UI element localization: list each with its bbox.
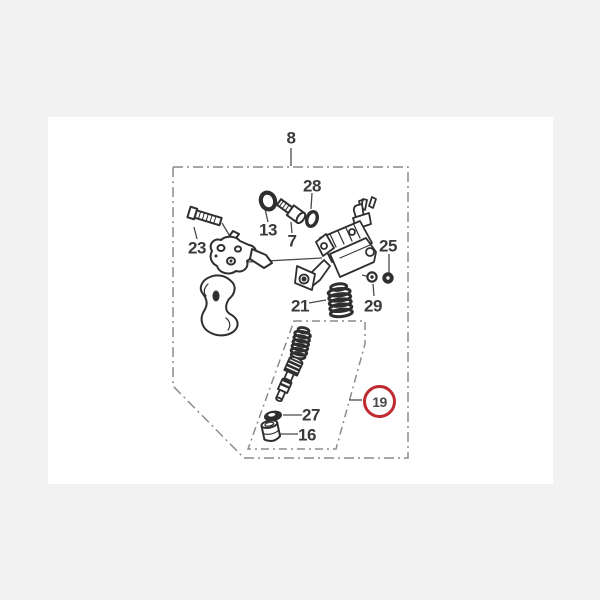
- part-label-8: 8: [287, 130, 296, 147]
- part-label-21: 21: [291, 298, 309, 315]
- parts-diagram-viewer: 8 28 13 7 23 25 21 29 27 16 19: [0, 0, 600, 600]
- part-label-19: 19: [372, 395, 387, 409]
- part-label-27: 27: [302, 407, 320, 424]
- spring-21-drawing: [327, 283, 352, 318]
- part-label-28: 28: [303, 178, 321, 195]
- leader-21: [309, 300, 326, 303]
- o-ring-13-drawing: [259, 191, 278, 211]
- leader-29: [373, 284, 374, 296]
- bolt-23-drawing: [187, 207, 222, 227]
- part-label-29: 29: [364, 298, 382, 315]
- bolt-7-drawing: [275, 197, 306, 224]
- stay-bracket-drawing: [201, 275, 238, 335]
- cup-16-drawing: [261, 419, 281, 442]
- leader-23: [194, 227, 197, 239]
- part-label-13: 13: [259, 222, 277, 239]
- valve-stem-drawing: [272, 355, 304, 403]
- part-label-16: 16: [298, 427, 316, 444]
- highlighted-part-circle: 19: [363, 385, 396, 418]
- part-label-25: 25: [379, 238, 397, 255]
- part-label-7: 7: [288, 233, 297, 250]
- washer-29-drawing: [367, 272, 376, 281]
- nut-25-drawing: [383, 273, 393, 283]
- part-label-23: 23: [188, 240, 206, 257]
- washer-28-drawing: [305, 210, 319, 227]
- valve-spring-drawing: [290, 326, 312, 360]
